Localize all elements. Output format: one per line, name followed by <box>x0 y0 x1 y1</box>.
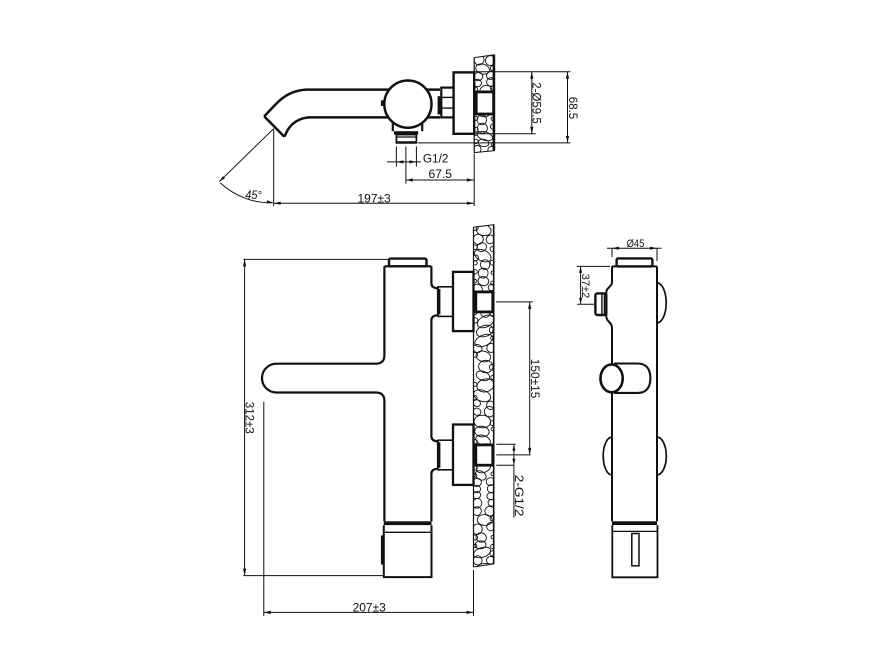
svg-text:37±2: 37±2 <box>579 274 591 299</box>
svg-text:150±15: 150±15 <box>528 359 542 399</box>
svg-text:Ø45: Ø45 <box>627 238 645 250</box>
svg-text:2-G1/2: 2-G1/2 <box>512 475 526 517</box>
svg-text:45°: 45° <box>245 188 262 202</box>
svg-text:G1/2: G1/2 <box>423 152 449 166</box>
svg-text:312±3: 312±3 <box>243 402 257 434</box>
svg-text:207±3: 207±3 <box>353 600 386 614</box>
svg-text:67.5: 67.5 <box>428 167 452 181</box>
svg-text:68.5: 68.5 <box>566 97 580 120</box>
svg-text:2-Ø59.5: 2-Ø59.5 <box>529 82 543 124</box>
svg-text:197±3: 197±3 <box>358 192 391 206</box>
